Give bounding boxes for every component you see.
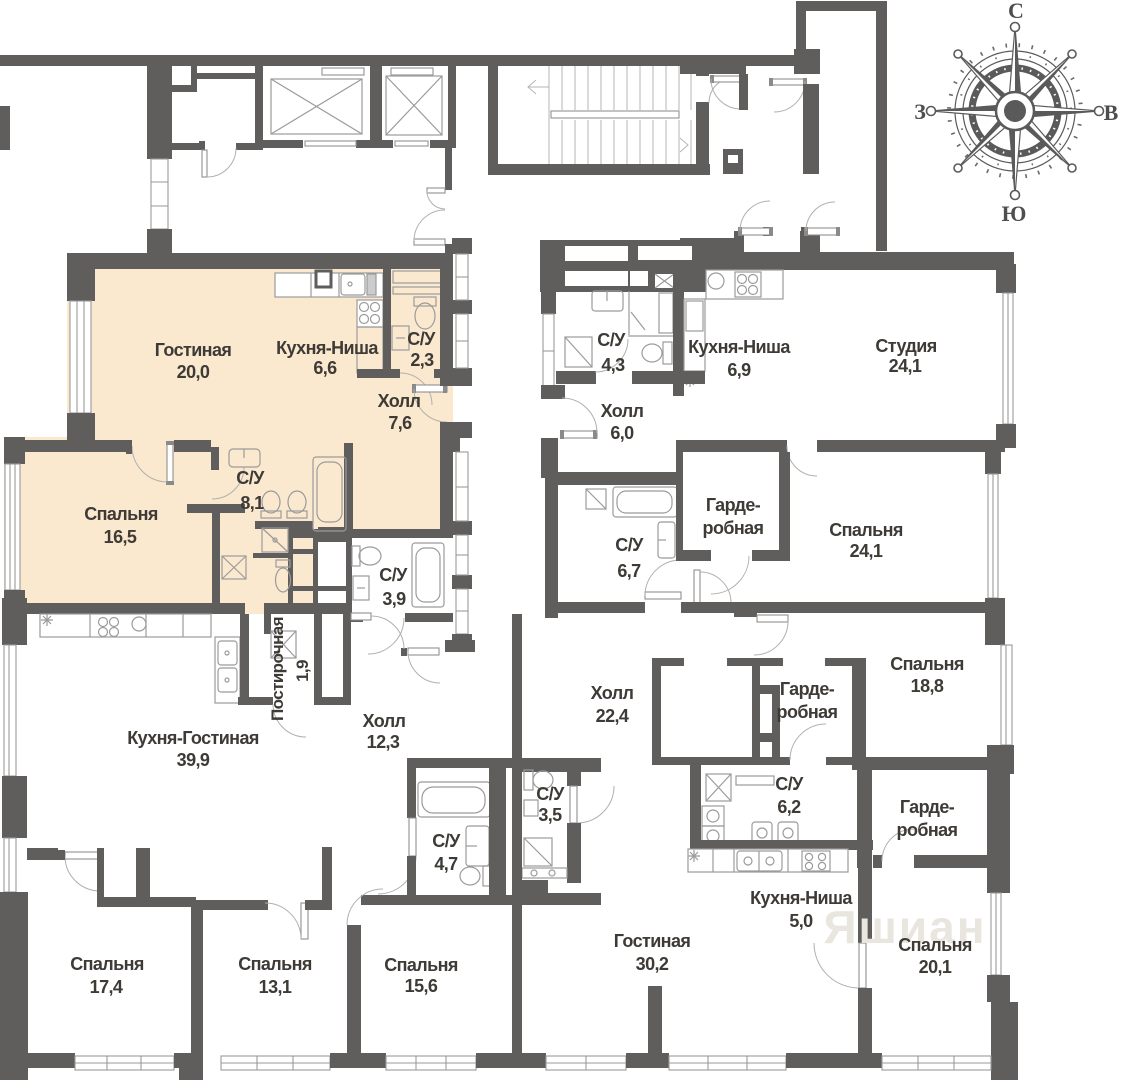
svg-text:Ю: Ю (1002, 201, 1027, 226)
svg-text:робная: робная (703, 518, 764, 538)
svg-text:Холл: Холл (591, 683, 634, 703)
svg-text:12,3: 12,3 (367, 732, 400, 752)
svg-text:Гарде-: Гарде- (900, 797, 955, 817)
svg-text:С/У: С/У (379, 565, 408, 585)
svg-text:Постирочная: Постирочная (268, 617, 287, 721)
svg-text:Холл: Холл (378, 391, 421, 411)
svg-text:24,1: 24,1 (850, 541, 883, 561)
svg-text:39,9: 39,9 (177, 750, 210, 770)
svg-text:6,0: 6,0 (610, 423, 634, 443)
svg-text:С/У: С/У (597, 330, 626, 350)
svg-text:С: С (1008, 0, 1024, 23)
svg-text:Спальня: Спальня (890, 654, 964, 674)
svg-text:17,4: 17,4 (90, 977, 123, 997)
svg-text:С/У: С/У (407, 329, 436, 349)
svg-text:Спальня: Спальня (70, 954, 144, 974)
svg-text:20,1: 20,1 (919, 957, 952, 977)
svg-text:3,9: 3,9 (382, 589, 406, 609)
svg-text:1,9: 1,9 (293, 660, 312, 682)
svg-text:Кухня-Гостиная: Кухня-Гостиная (127, 728, 259, 748)
svg-text:7,6: 7,6 (388, 413, 412, 433)
svg-text:Спальня: Спальня (84, 504, 158, 524)
svg-text:18,8: 18,8 (911, 676, 944, 696)
svg-text:4,3: 4,3 (601, 355, 625, 375)
svg-text:Гостиная: Гостиная (614, 931, 691, 951)
svg-text:С/У: С/У (536, 784, 565, 804)
svg-text:З: З (914, 99, 926, 124)
svg-text:Кухня-Ниша: Кухня-Ниша (276, 338, 379, 358)
svg-text:15,6: 15,6 (405, 976, 438, 996)
svg-text:робная: робная (897, 820, 958, 840)
svg-text:30,2: 30,2 (636, 954, 669, 974)
svg-text:Гарде-: Гарде- (780, 679, 835, 699)
svg-text:Спальня: Спальня (898, 935, 972, 955)
svg-text:16,5: 16,5 (104, 527, 137, 547)
svg-text:8,1: 8,1 (240, 493, 264, 513)
svg-text:3,5: 3,5 (538, 805, 562, 825)
svg-text:13,1: 13,1 (259, 977, 292, 997)
svg-text:Студия: Студия (875, 336, 936, 356)
svg-text:Холл: Холл (601, 401, 644, 421)
svg-text:20,0: 20,0 (177, 362, 210, 382)
svg-text:В: В (1104, 100, 1119, 125)
svg-text:робная: робная (777, 702, 838, 722)
svg-text:6,2: 6,2 (777, 797, 801, 817)
svg-text:24,1: 24,1 (889, 356, 922, 376)
svg-text:С/У: С/У (615, 535, 644, 555)
svg-text:С/У: С/У (236, 468, 265, 488)
svg-text:4,7: 4,7 (434, 854, 458, 874)
svg-text:6,6: 6,6 (313, 358, 337, 378)
svg-text:Спальня: Спальня (384, 955, 458, 975)
svg-text:С/У: С/У (775, 774, 804, 794)
svg-text:Гостиная: Гостиная (155, 340, 232, 360)
svg-text:2,3: 2,3 (410, 350, 434, 370)
svg-text:Спальня: Спальня (238, 954, 312, 974)
svg-text:6,7: 6,7 (617, 561, 641, 581)
svg-text:Кухня-Ниша: Кухня-Ниша (750, 888, 853, 908)
svg-text:Гарде-: Гарде- (706, 495, 761, 515)
svg-text:6,9: 6,9 (727, 360, 751, 380)
svg-text:5,0: 5,0 (789, 911, 813, 931)
svg-text:Холл: Холл (363, 711, 406, 731)
svg-text:С/У: С/У (432, 831, 461, 851)
svg-text:22,4: 22,4 (596, 706, 629, 726)
svg-text:Кухня-Ниша: Кухня-Ниша (688, 337, 791, 357)
svg-text:Спальня: Спальня (829, 520, 903, 540)
